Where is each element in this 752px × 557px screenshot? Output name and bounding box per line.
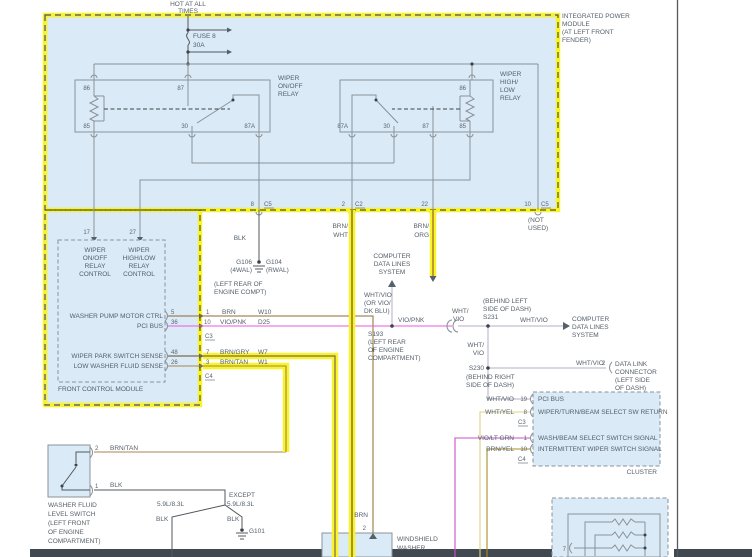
cdl-top-2: DATA LINES: [374, 261, 411, 268]
ground-g106: G106: [236, 259, 252, 266]
cluster-row3-label: WASH/BEAM SELECT SWITCH SIGNAL: [538, 435, 658, 442]
washer-switch-name-5: COMPARTMENT): [48, 538, 100, 545]
dlc-wire-label: WHT/VIO: [576, 360, 604, 367]
blk-right-label: BLK: [227, 516, 240, 523]
not-used-1: (NOT: [528, 217, 544, 224]
s231-loc-1: (BEHIND LEFT: [483, 298, 527, 305]
s230-loc-1: (BEHIND RIGHT: [466, 374, 515, 381]
cluster-row4-wire: BRN/YEL: [486, 446, 514, 453]
ipm-pin-22: 22: [421, 202, 428, 208]
fcm-ctrl1-3: RELAY: [85, 263, 106, 270]
whtvio-down-2: VIO: [473, 350, 484, 357]
fcm-row2-circuit: D25: [258, 319, 270, 326]
fcm-pin-27: 27: [129, 230, 136, 236]
splice-s230-label: S230: [469, 365, 485, 372]
fcm-row1-label: WASHER PUMP MOTOR CTRL: [70, 313, 164, 320]
onoff-pin-87a: 87A: [244, 124, 255, 130]
fcm-row3-circuit: W7: [258, 349, 268, 356]
splice-s193: [390, 324, 394, 328]
highlow-pin-85: 85: [459, 124, 466, 130]
ground-g101-label: G101: [249, 528, 265, 535]
fcm-row2-pin: 36: [171, 320, 178, 326]
wire-label-brnorg-1: BRN/: [413, 223, 429, 230]
wire-label-brnwht-1: BRN/: [332, 223, 348, 230]
ipm-highlight-region: [45, 15, 558, 210]
viopnk-label: VIO/PNK: [398, 317, 425, 324]
highlow-pin-86: 86: [459, 86, 466, 92]
ipm-pin-10: 10: [524, 202, 531, 208]
highlow-relay-name-2: HIGH/: [500, 79, 518, 86]
fcm-row2-label: PCI BUS: [137, 323, 164, 330]
cdl-right-1: COMPUTER: [572, 316, 610, 323]
cluster-row2-label: WIPER/TURN/BEAM SELECT SW RETURN: [538, 409, 668, 416]
whtvio-alt-2: (OR VIO/: [364, 300, 391, 307]
onoff-pin-86: 86: [83, 86, 90, 92]
hot-at-all-times-line1: HOT AT ALL: [170, 1, 206, 8]
fcm-ctrl1-4: CONTROL: [79, 271, 111, 278]
onoff-pin-30: 30: [181, 124, 188, 130]
wiper-washer-wiring-diagram: HOT AT ALL TIMES FUSE 8 30A INTEGRATED P…: [0, 0, 752, 557]
ground-g101: [240, 528, 244, 532]
cluster-row1-label: PCI BUS: [538, 396, 565, 403]
cdl-right-3: SYSTEM: [572, 332, 599, 339]
fcm-row3-pin: 48: [171, 350, 178, 356]
fcm-row1-circuit: W10: [258, 309, 272, 316]
ground-loc-1: (LEFT REAR OF: [214, 281, 263, 288]
branch-left-label: 5.9L/8.3L: [157, 501, 184, 508]
branch-right-label-1: EXCEPT: [229, 492, 255, 499]
fcm-row2-wire: VIO/PNK: [220, 319, 247, 326]
whtvio-right-label: WHT/VIO: [520, 317, 548, 324]
wire-label-brnwht-2: WHT: [333, 232, 348, 239]
washer-switch-name-4: OF ENGINE: [48, 529, 84, 536]
fcm-ctrl1-1: WIPER: [84, 247, 106, 254]
splice-s230: [486, 366, 490, 370]
fuse-name: FUSE 8: [193, 33, 216, 40]
cluster-row4-pin: 10: [520, 447, 527, 453]
highlow-relay-name-1: WIPER: [500, 71, 522, 78]
washer-switch-name-2: LEVEL SWITCH: [48, 511, 96, 518]
fcm-name: FRONT CONTROL MODULE: [58, 386, 144, 393]
not-used-2: USED): [528, 225, 548, 232]
blk-left-label: BLK: [156, 516, 169, 523]
ipm-pin-8-conn: C5: [264, 202, 272, 208]
fcm-row2-ext: 10: [204, 320, 211, 326]
cluster-box: [533, 392, 660, 466]
washer-switch-name-3: (LEFT FRONT: [48, 520, 90, 527]
fcm-row4-wire: BRN/TAN: [220, 359, 248, 366]
highlow-relay-name-4: RELAY: [500, 95, 521, 102]
ground-g104: G104: [266, 259, 282, 266]
ipm-name-4: FENDER): [562, 37, 591, 44]
s231-loc-2: SIDE OF DASH): [483, 306, 531, 313]
fuse-rating: 30A: [193, 42, 205, 49]
cluster-row1-pin: 19: [520, 397, 527, 403]
cluster-connector-c4: C4: [518, 457, 526, 463]
whtvio-mid-1: WHT/: [452, 308, 469, 315]
fcm-ctrl2-3: RELAY: [129, 263, 150, 270]
onoff-relay-name-2: ON/OFF: [278, 83, 303, 90]
fcm-ctrl2-2: HIGH/LOW: [123, 255, 157, 262]
ground-loc-2: ENGINE COMPT): [214, 289, 266, 296]
splice-s231: [486, 324, 490, 328]
whtvio-alt-3: DK BLU): [364, 308, 390, 315]
whtvio-alt-1: WHT/VIO: [364, 292, 392, 299]
pump-name-1: WINDSHIELD: [397, 536, 438, 543]
fcm-connector-c4: C4: [205, 374, 213, 380]
brn-pump-label: BRN: [354, 512, 368, 519]
ipm-pin-10-conn: C5: [541, 202, 549, 208]
cluster-row4-label: INTERMITTENT WIPER SWITCH SIGNAL: [538, 446, 662, 453]
onoff-pin-87: 87: [177, 86, 184, 92]
ground-g106-note: (4WAL): [230, 267, 252, 274]
hot-at-all-times-line2: TIMES: [178, 8, 199, 15]
washer-switch-name-1: WASHER FLUID: [48, 502, 97, 509]
dlc-4: OF DASH): [615, 385, 646, 392]
wire-label-blk: BLK: [234, 235, 247, 242]
highlow-pin-87a: 87A: [337, 124, 348, 130]
fcm-connector-c3: C3: [205, 334, 213, 340]
dlc-2: CONNECTOR: [615, 369, 657, 376]
dlc-3: (LEFT SIDE: [615, 377, 651, 384]
onoff-pin-85: 85: [83, 124, 90, 130]
ipm-pin-2-conn: C2: [355, 202, 363, 208]
fcm-pin-17: 17: [83, 230, 90, 236]
fcm-row4-circuit: W1: [258, 359, 268, 366]
splice-s193-label: S193: [368, 331, 384, 338]
wire-label-brnorg-2: ORG: [414, 232, 429, 239]
ipm-name-3: (AT LEFT FRONT: [562, 29, 614, 36]
washer-fluid-switch-box: [48, 445, 90, 497]
fcm-ctrl1-2: ON/OFF: [83, 255, 108, 262]
brn-tan-label: BRN/TAN: [110, 445, 138, 452]
s193-loc-1: (LEFT REAR: [368, 339, 406, 346]
dlc-1: DATA LINK: [615, 361, 648, 368]
ipm-name-1: INTEGRATED POWER: [562, 13, 630, 20]
fcm-row3-label: WIPER PARK SWITCH SENSE: [71, 353, 163, 360]
s230-loc-2: SIDE OF DASH): [466, 382, 514, 389]
fcm-row3-wire: BRN/GRY: [220, 349, 250, 356]
ipm-name-2: MODULE: [562, 21, 590, 28]
highlow-pin-30: 30: [383, 124, 390, 130]
fcm-ctrl2-1: WIPER: [128, 247, 150, 254]
fcm-ctrl2-4: CONTROL: [123, 271, 155, 278]
ground-g106-g104: [257, 260, 261, 264]
cluster-row1-wire: WHT/VIO: [486, 396, 514, 403]
onoff-relay-name-3: RELAY: [278, 91, 299, 98]
cdl-top-3: SYSTEM: [379, 269, 406, 276]
s193-loc-2: OF ENGINE: [368, 347, 404, 354]
cdl-right-2: DATA LINES: [572, 324, 609, 331]
blk-label: BLK: [110, 482, 123, 489]
pump-name-2: WASHER: [397, 545, 426, 552]
cluster-connector-c3: C3: [518, 420, 526, 426]
s193-loc-3: COMPARTMENT): [368, 355, 420, 362]
whtvio-mid-2: VIO: [453, 316, 464, 323]
whtvio-down-1: WHT/: [467, 342, 484, 349]
branch-right-label-2: 5.9L/8.3L: [227, 501, 254, 508]
ground-g104-note: (RWAL): [266, 267, 289, 274]
cluster-row2-wire: WHT/YEL: [485, 409, 514, 416]
wiring-diagram-page: HOT AT ALL TIMES FUSE 8 30A INTEGRATED P…: [0, 0, 752, 557]
splice-s231-label: S231: [483, 314, 499, 321]
highlow-relay-name-3: LOW: [500, 87, 516, 94]
fcm-row1-wire: BRN: [222, 309, 236, 316]
cluster-name: CLUSTER: [627, 469, 658, 476]
fcm-row4-pin: 26: [171, 360, 178, 366]
cluster-row3-wire: VIO/LT GRN: [478, 435, 515, 442]
cdl-top-1: COMPUTER: [373, 253, 411, 260]
highlow-pin-87: 87: [422, 124, 429, 130]
fcm-row4-label: LOW WASHER FLUID SENSE: [74, 363, 164, 370]
onoff-relay-name-1: WIPER: [278, 75, 300, 82]
